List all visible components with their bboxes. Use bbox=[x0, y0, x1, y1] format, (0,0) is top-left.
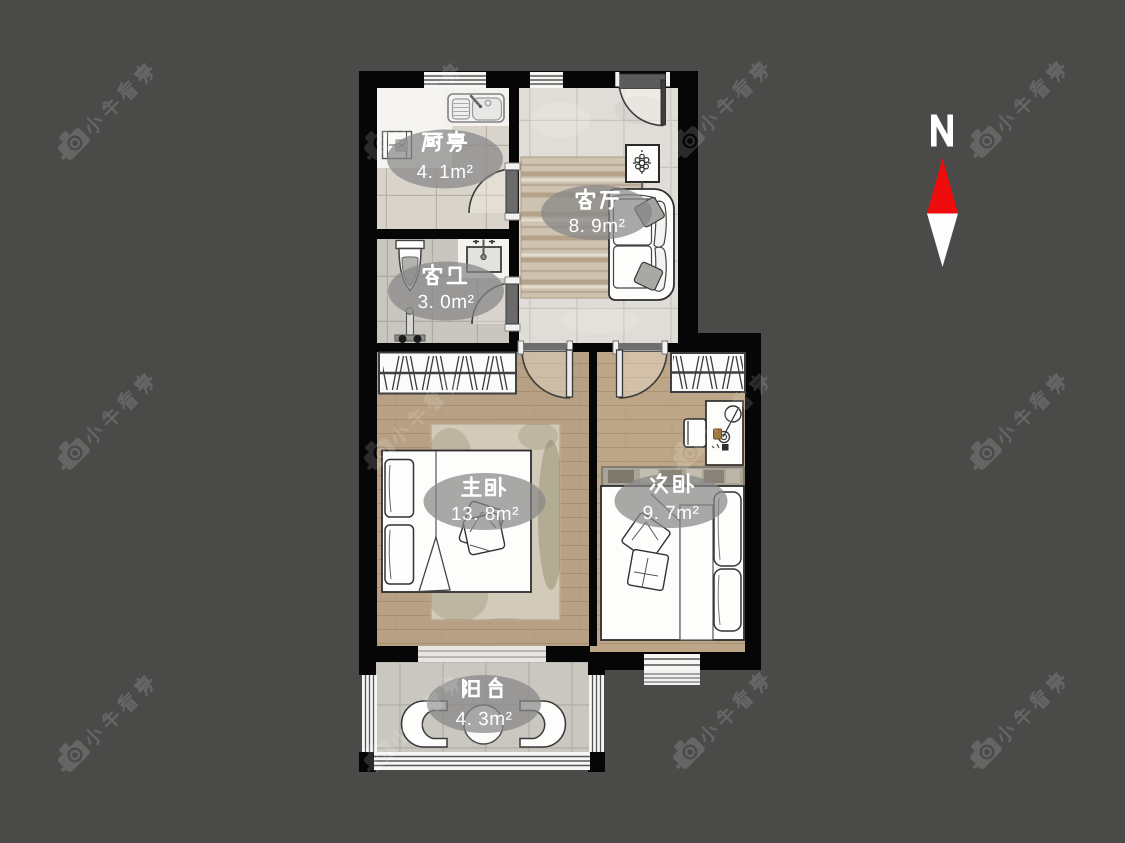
svg-text:13. 8m²: 13. 8m² bbox=[451, 504, 519, 525]
svg-text:4. 3m²: 4. 3m² bbox=[456, 709, 513, 730]
svg-text:4. 1m²: 4. 1m² bbox=[417, 162, 474, 183]
svg-text:3. 0m²: 3. 0m² bbox=[418, 292, 475, 313]
svg-text:8. 9m²: 8. 9m² bbox=[569, 216, 626, 237]
svg-text:9. 7m²: 9. 7m² bbox=[643, 503, 700, 524]
